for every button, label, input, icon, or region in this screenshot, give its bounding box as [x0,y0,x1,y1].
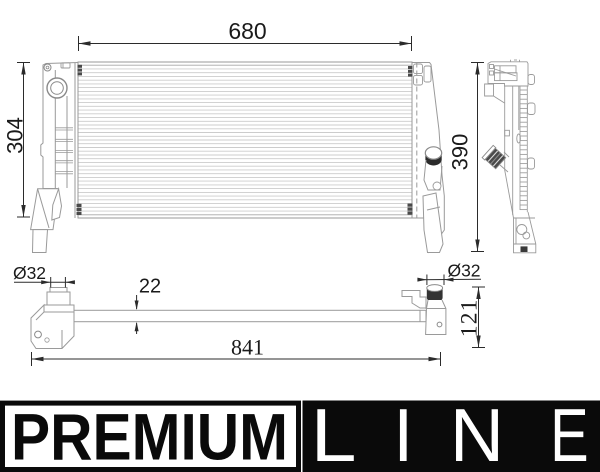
svg-text:680: 680 [228,18,266,44]
svg-text:I: I [393,394,413,472]
svg-text:390: 390 [448,134,473,171]
svg-text:E: E [550,394,589,472]
svg-text:N: N [450,393,504,472]
svg-text:PREMIUM: PREMIUM [11,400,288,472]
svg-text:22: 22 [139,276,161,298]
svg-text:Ø32: Ø32 [447,261,480,281]
svg-text:Ø32: Ø32 [13,263,46,283]
svg-text:841: 841 [231,334,264,359]
svg-text:L: L [311,393,357,472]
